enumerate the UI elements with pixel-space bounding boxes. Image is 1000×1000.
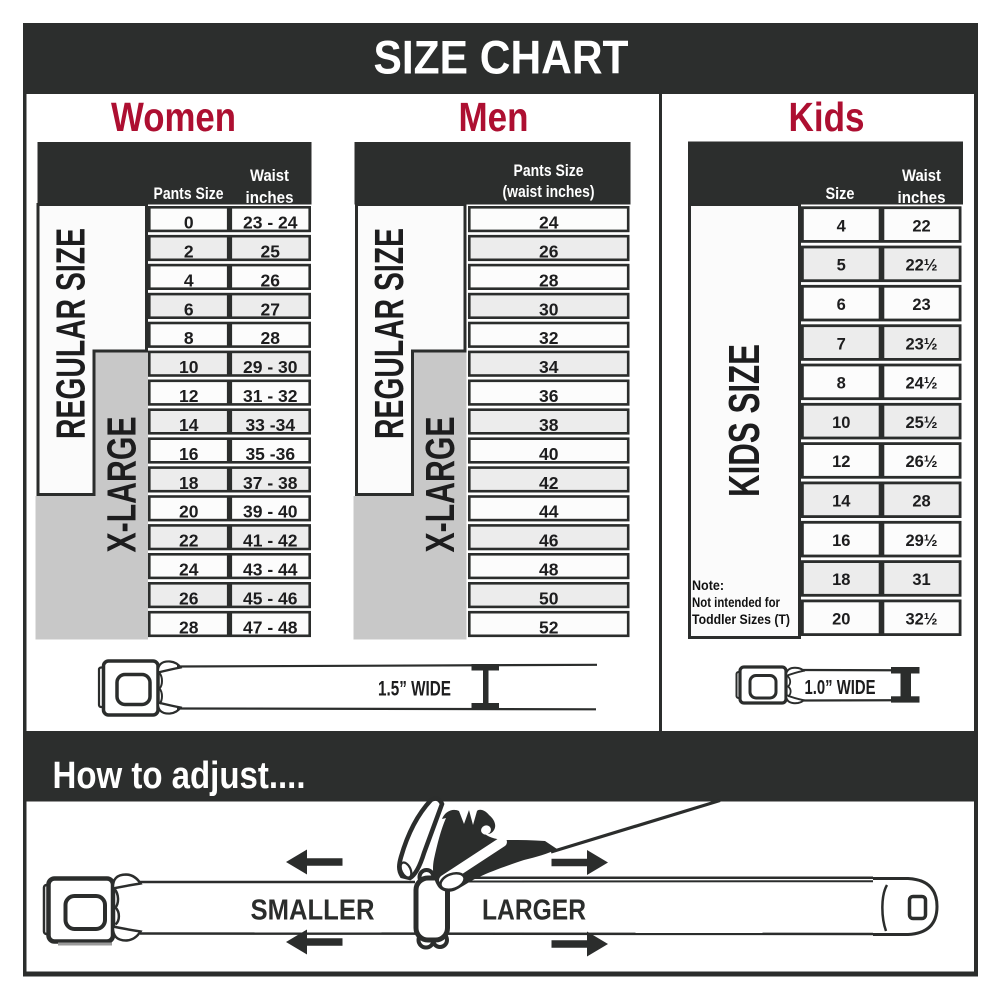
svg-text:28: 28 — [539, 270, 559, 290]
svg-text:32: 32 — [539, 328, 559, 348]
svg-text:26: 26 — [179, 589, 199, 609]
svg-text:28: 28 — [261, 328, 281, 348]
svg-text:4: 4 — [184, 270, 194, 290]
svg-text:29½: 29½ — [905, 532, 937, 550]
svg-text:38: 38 — [539, 415, 559, 435]
svg-text:36: 36 — [539, 386, 559, 406]
svg-text:37 - 38: 37 - 38 — [243, 473, 298, 493]
svg-text:Men: Men — [459, 94, 529, 140]
svg-text:How to adjust....: How to adjust.... — [53, 755, 306, 797]
svg-text:41 - 42: 41 - 42 — [243, 531, 298, 551]
svg-text:16: 16 — [832, 532, 850, 550]
svg-text:14: 14 — [179, 415, 199, 435]
svg-text:31 - 32: 31 - 32 — [243, 386, 298, 406]
svg-text:5: 5 — [837, 257, 846, 275]
svg-text:14: 14 — [832, 493, 851, 511]
svg-text:7: 7 — [837, 335, 846, 353]
svg-text:20: 20 — [179, 502, 199, 522]
svg-text:10: 10 — [179, 357, 199, 377]
svg-text:inches: inches — [246, 189, 294, 207]
svg-text:24: 24 — [179, 560, 199, 580]
svg-text:Not intended for: Not intended for — [692, 594, 780, 610]
svg-text:X-LARGE: X-LARGE — [99, 417, 145, 553]
svg-text:REGULAR SIZE: REGULAR SIZE — [48, 228, 94, 439]
svg-text:46: 46 — [539, 531, 559, 551]
svg-text:LARGER: LARGER — [482, 895, 586, 927]
svg-text:SIZE CHART: SIZE CHART — [374, 31, 629, 84]
svg-text:12: 12 — [832, 453, 850, 471]
svg-text:50: 50 — [539, 589, 559, 609]
svg-text:10: 10 — [832, 414, 850, 432]
svg-text:25: 25 — [261, 241, 281, 261]
svg-text:25½: 25½ — [905, 414, 937, 432]
svg-text:39 - 40: 39 - 40 — [243, 502, 298, 522]
svg-text:Pants Size: Pants Size — [514, 162, 584, 180]
svg-text:23 - 24: 23 - 24 — [243, 213, 298, 233]
svg-text:18: 18 — [832, 571, 850, 589]
svg-text:23: 23 — [912, 296, 930, 314]
svg-text:REGULAR SIZE: REGULAR SIZE — [366, 228, 412, 439]
svg-text:28: 28 — [179, 617, 199, 637]
svg-text:4: 4 — [837, 217, 847, 235]
svg-text:22½: 22½ — [905, 257, 937, 275]
svg-text:26: 26 — [261, 270, 281, 290]
svg-text:26½: 26½ — [905, 453, 937, 471]
svg-text:28: 28 — [912, 493, 930, 511]
svg-text:6: 6 — [837, 296, 846, 314]
svg-text:6: 6 — [184, 299, 194, 319]
svg-text:33 -34: 33 -34 — [245, 415, 295, 435]
svg-text:34: 34 — [539, 357, 559, 377]
svg-text:Note:: Note: — [692, 577, 724, 593]
svg-text:Kids: Kids — [789, 94, 865, 140]
svg-text:40: 40 — [539, 444, 559, 464]
svg-text:24½: 24½ — [905, 375, 937, 393]
svg-text:2: 2 — [184, 241, 194, 261]
svg-text:Toddler Sizes (T): Toddler Sizes (T) — [692, 611, 790, 627]
svg-text:43 - 44: 43 - 44 — [243, 560, 298, 580]
svg-text:8: 8 — [184, 328, 194, 348]
svg-text:8: 8 — [837, 375, 846, 393]
svg-text:0: 0 — [184, 213, 194, 233]
svg-text:52: 52 — [539, 617, 559, 637]
svg-text:1.0” WIDE: 1.0” WIDE — [805, 676, 876, 699]
svg-text:Pants Size: Pants Size — [154, 185, 224, 203]
svg-text:KIDS SIZE: KIDS SIZE — [720, 344, 769, 497]
svg-text:45 - 46: 45 - 46 — [243, 589, 298, 609]
svg-text:47 - 48: 47 - 48 — [243, 617, 298, 637]
svg-text:27: 27 — [261, 299, 280, 319]
svg-text:16: 16 — [179, 444, 199, 464]
svg-text:22: 22 — [179, 531, 199, 551]
svg-text:32½: 32½ — [905, 611, 937, 629]
svg-text:Waist: Waist — [250, 167, 289, 185]
svg-text:35 -36: 35 -36 — [245, 444, 295, 464]
svg-text:22: 22 — [912, 217, 930, 235]
svg-text:26: 26 — [539, 241, 559, 261]
svg-text:12: 12 — [179, 386, 199, 406]
svg-text:23½: 23½ — [905, 335, 937, 353]
svg-text:29 - 30: 29 - 30 — [243, 357, 298, 377]
svg-text:Waist: Waist — [902, 167, 941, 185]
svg-text:1.5” WIDE: 1.5” WIDE — [378, 677, 451, 701]
svg-text:Size: Size — [826, 185, 855, 203]
svg-text:30: 30 — [539, 299, 559, 319]
svg-text:X-LARGE: X-LARGE — [417, 417, 463, 553]
svg-text:48: 48 — [539, 560, 559, 580]
svg-text:42: 42 — [539, 473, 559, 493]
svg-text:18: 18 — [179, 473, 199, 493]
svg-text:Women: Women — [111, 94, 236, 140]
svg-text:(waist inches): (waist inches) — [503, 183, 595, 201]
svg-text:31: 31 — [912, 571, 930, 589]
svg-text:inches: inches — [898, 189, 946, 207]
svg-text:44: 44 — [539, 502, 559, 522]
svg-text:SMALLER: SMALLER — [251, 895, 375, 927]
svg-text:20: 20 — [832, 611, 850, 629]
svg-text:24: 24 — [539, 213, 559, 233]
